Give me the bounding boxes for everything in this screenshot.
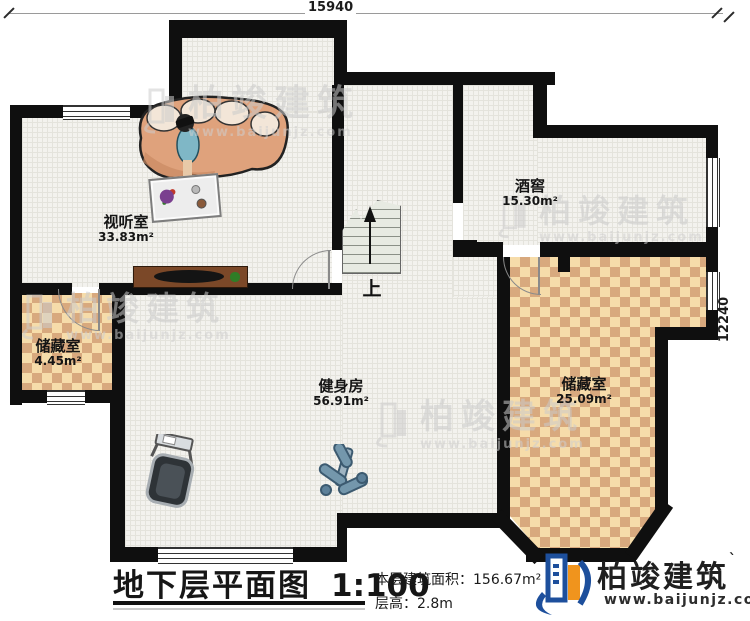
brand-logo-icon — [524, 550, 596, 618]
floor-gym-passage — [453, 255, 500, 297]
room-label-wine: 酒窖15.30m² — [480, 178, 580, 209]
floor-area-info: 本层建筑面积：156.67m² — [375, 569, 541, 589]
brand-tick: ` — [729, 552, 739, 568]
wall-outer-left-lower — [110, 390, 125, 562]
title-underline-thick — [113, 601, 365, 605]
window-storage-small-bottom — [47, 390, 85, 405]
plant-icon — [230, 272, 240, 282]
wall-wine-top-west — [334, 72, 555, 85]
door-leaf-storage-large — [538, 257, 540, 295]
tv-icon — [154, 270, 224, 283]
wall-protrusion-top — [169, 20, 347, 38]
dimension-line-top — [9, 13, 723, 14]
dimension-top-label: 15940 — [305, 0, 356, 15]
window-media-top — [63, 105, 130, 120]
stair-arrow-line — [369, 220, 371, 264]
door-leaf-media — [328, 250, 330, 289]
floor-gym-west — [125, 295, 345, 549]
title-underline-thin — [113, 608, 365, 610]
brand-website: www.baijunjz.com — [604, 592, 750, 608]
table-item-icon — [191, 185, 201, 195]
wall-wine-bottom-west — [453, 242, 503, 257]
wall-wine-bottom-east — [540, 242, 718, 257]
dumbbells-icon — [314, 444, 372, 504]
floor-height-label: 层高： — [375, 596, 417, 612]
window-wine-right — [706, 158, 720, 227]
floor-plan-canvas: 上 — [0, 0, 750, 621]
room-label-storage-large: 储藏室25.09m² — [534, 376, 634, 407]
wall-wine-top-east — [533, 125, 718, 138]
floor-height-info: 层高：2.8m — [375, 593, 453, 613]
tv-cabinet — [133, 266, 248, 288]
brand-name: 柏竣建筑` — [597, 552, 739, 596]
wall-storage-large-stub — [558, 257, 570, 272]
stair-arrow-head-icon — [364, 206, 376, 222]
stair-up-label: 上 — [358, 274, 386, 301]
wall-storage-large-left — [497, 257, 510, 519]
floor-height-value: 2.8m — [417, 596, 453, 612]
floor-area-label: 本层建筑面积： — [375, 572, 473, 588]
table-item2-icon — [196, 198, 207, 209]
dimension-right-label: 12240 — [717, 294, 732, 345]
page-title: 地下层平面图 — [113, 560, 311, 605]
floor-wine-cellar-west — [463, 85, 537, 245]
wall-gym-bottom-east — [337, 513, 500, 528]
wall-storage-small-right — [112, 290, 125, 400]
wall-storage-large-right — [655, 327, 668, 512]
door-leaf-storage-small — [98, 289, 100, 330]
treadmill-icon — [140, 434, 206, 508]
room-label-gym: 健身房56.91m² — [291, 378, 391, 409]
dimension-tick-right2 — [723, 11, 734, 22]
room-label-storage-small: 储藏室4.45m² — [18, 338, 98, 369]
flower-decor-icon — [159, 189, 174, 204]
wall-media-right — [332, 85, 344, 250]
wall-wine-left — [453, 85, 463, 203]
room-label-media: 视听室33.83m² — [76, 214, 176, 245]
